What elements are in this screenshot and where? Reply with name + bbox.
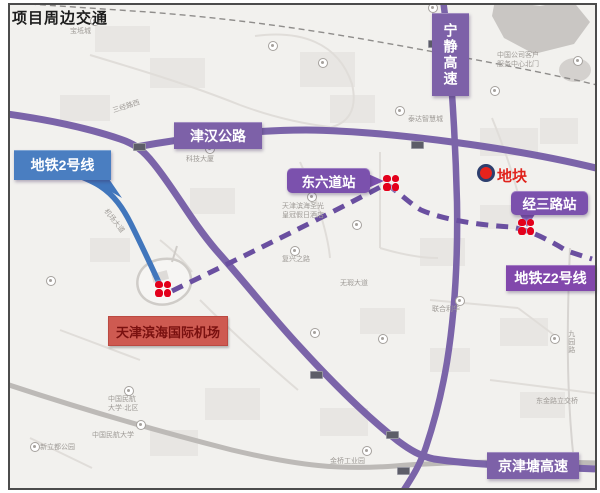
jingsanlu-station-label: 经三路站 xyxy=(511,191,588,215)
poi-pin-icon xyxy=(124,386,134,396)
road-shield-icon xyxy=(310,371,323,379)
page-title: 项目周边交通 xyxy=(12,7,108,28)
poi-pin-icon xyxy=(307,192,317,202)
jingjintang-expressway-label: 京津塘高速 xyxy=(487,452,579,479)
poi-label: 无瑕大道 xyxy=(340,280,368,289)
poi-label: 中国民航大学 xyxy=(92,432,134,441)
metro-line2-label: 地铁2号线 xyxy=(14,150,111,180)
poi-label: 九园路 xyxy=(566,330,575,354)
poi-label: 中国民航大学·北区 xyxy=(108,396,138,414)
poi-pin-icon xyxy=(310,328,320,338)
poi-pin-icon xyxy=(290,246,300,256)
map-page: 宝坻城科技大厦城市广场天津滨海圣光皇冠假日酒店中国公司客户服务中心北门联合利华中… xyxy=(0,0,600,493)
poi-pin-icon xyxy=(550,334,560,344)
road-shield-icon xyxy=(411,141,424,149)
poi-label: 金桥工业园 xyxy=(330,458,365,467)
poi-pin-icon xyxy=(490,86,500,96)
poi-pin-icon xyxy=(318,58,328,68)
poi-pin-icon xyxy=(455,296,465,306)
plot-marker-icon xyxy=(477,164,495,182)
map-roads-svg xyxy=(0,0,600,493)
poi-pin-icon xyxy=(352,220,362,230)
airport-label: 天津滨海国际机场 xyxy=(108,316,228,346)
road-shield-icon xyxy=(386,431,399,439)
base-map-layer: 宝坻城科技大厦城市广场天津滨海圣光皇冠假日酒店中国公司客户服务中心北门联合利华中… xyxy=(0,0,600,493)
poi-pin-icon xyxy=(46,276,56,286)
road-shield-icon xyxy=(397,467,410,475)
ningjing-expressway-label: 宁静高速 xyxy=(432,13,469,96)
poi-label: 泰达智慧城 xyxy=(408,116,443,125)
tianjin-metro-logo-icon xyxy=(155,281,171,297)
poi-label: 新立都公园 xyxy=(40,444,75,453)
jinhan-highway-label: 津汉公路 xyxy=(174,122,262,149)
poi-pin-icon xyxy=(573,56,583,66)
poi-pin-icon xyxy=(136,420,146,430)
dongliudao-station-label: 东六道站 xyxy=(287,168,370,193)
poi-pin-icon xyxy=(30,442,40,452)
poi-pin-icon xyxy=(362,446,372,456)
tianjin-metro-logo-icon xyxy=(518,219,534,235)
poi-pin-icon xyxy=(395,106,405,116)
poi-label: 科技大厦 xyxy=(186,156,214,165)
poi-label: 天津滨海圣光皇冠假日酒店 xyxy=(282,203,324,221)
poi-label: 宝坻城 xyxy=(70,28,91,37)
poi-label: 中国公司客户服务中心北门 xyxy=(497,52,539,70)
road-shield-icon xyxy=(133,143,146,151)
poi-pin-icon xyxy=(378,334,388,344)
poi-label: 东金路立交桥 xyxy=(536,398,578,407)
plot-label: 地块 xyxy=(497,165,527,186)
metro-z2-label: 地铁Z2号线 xyxy=(506,265,595,291)
poi-label: 联合利华 xyxy=(432,306,460,315)
poi-label: 复兴之路 xyxy=(282,256,310,265)
park-area-shape xyxy=(492,0,590,54)
poi-pin-icon xyxy=(268,41,278,51)
tianjin-metro-logo-icon xyxy=(383,175,399,191)
